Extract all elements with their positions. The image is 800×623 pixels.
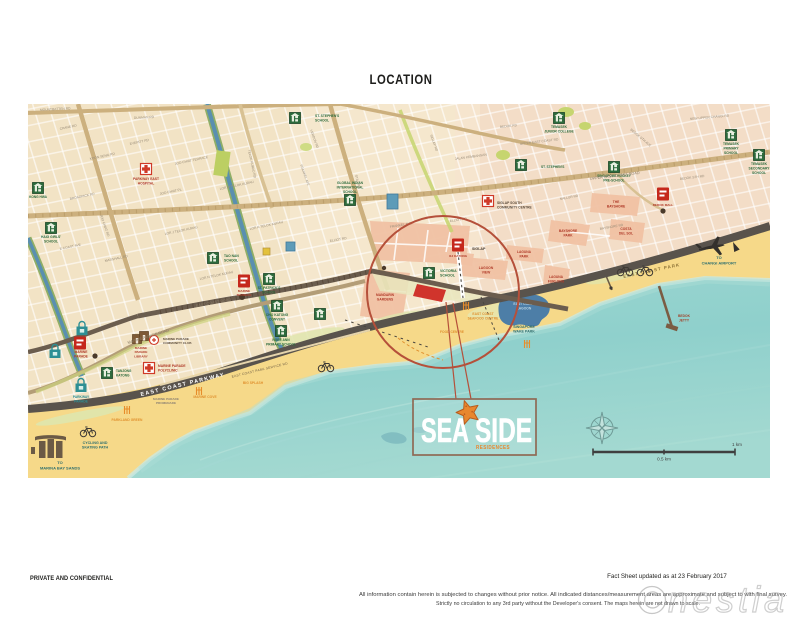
- svg-text:TO: TO: [57, 460, 62, 465]
- svg-text:SCHOOL: SCHOOL: [440, 274, 456, 278]
- svg-text:SIGLAP: SIGLAP: [472, 247, 486, 251]
- svg-text:PARADE: PARADE: [135, 350, 148, 354]
- svg-text:PARKWAY: PARKWAY: [73, 395, 90, 399]
- svg-text:LAGOON: LAGOON: [517, 307, 532, 311]
- svg-text:TANJONG: TANJONG: [116, 369, 132, 373]
- svg-text:JETTY: JETTY: [679, 319, 690, 323]
- svg-text:PRE-SCHOOL: PRE-SCHOOL: [603, 178, 624, 182]
- svg-text:TEMASEK: TEMASEK: [551, 125, 568, 129]
- svg-text:SEAFOOD CENTRE: SEAFOOD CENTRE: [468, 316, 500, 320]
- svg-text:BAYSHORE: BAYSHORE: [607, 204, 626, 208]
- svg-text:MARINE: MARINE: [238, 289, 250, 293]
- svg-text:THE: THE: [613, 200, 620, 204]
- svg-text:BAYSHORE: BAYSHORE: [559, 229, 578, 233]
- svg-text:LIBRARY: LIBRARY: [134, 354, 149, 358]
- svg-text:MARINE PARADE: MARINE PARADE: [158, 364, 186, 368]
- svg-text:PARKLAND GREEN: PARKLAND GREEN: [112, 418, 144, 422]
- svg-text:SCHOOL: SCHOOL: [343, 190, 357, 194]
- svg-text:NGEE ANN: NGEE ANN: [272, 338, 290, 342]
- svg-text:ST. PATRICK'S: ST. PATRICK'S: [258, 286, 282, 290]
- svg-text:TEMASEK: TEMASEK: [751, 162, 768, 166]
- svg-text:CHANGI AIRPORT: CHANGI AIRPORT: [702, 260, 737, 265]
- svg-text:FOOD CENTRE: FOOD CENTRE: [440, 330, 465, 334]
- svg-text:0.5 km: 0.5 km: [657, 457, 671, 462]
- svg-text:MARINE PARADE: MARINE PARADE: [163, 337, 189, 341]
- svg-text:TAO NAN: TAO NAN: [224, 254, 239, 258]
- svg-text:ST. STEPHEN'S: ST. STEPHEN'S: [315, 114, 340, 118]
- svg-text:LAGOON: LAGOON: [479, 266, 494, 270]
- svg-text:KONG HWA: KONG HWA: [29, 195, 48, 199]
- svg-text:SCHOOL: SCHOOL: [315, 118, 329, 122]
- svg-text:FURLONG: FURLONG: [548, 279, 565, 283]
- svg-text:JUNIOR COLLEGE: JUNIOR COLLEGE: [544, 129, 574, 133]
- svg-text:EAST COAST: EAST COAST: [472, 312, 493, 316]
- svg-text:SEA: SEA: [421, 412, 469, 450]
- svg-text:COMMUNITY CLUB: COMMUNITY CLUB: [163, 341, 192, 345]
- svg-text:MARINE COVE: MARINE COVE: [193, 395, 217, 399]
- svg-text:SIGLAP SOUTH: SIGLAP SOUTH: [497, 201, 522, 205]
- svg-text:SECONDARY: SECONDARY: [749, 166, 771, 170]
- svg-text:PARK: PARK: [519, 254, 529, 258]
- svg-text:nestia: nestia: [668, 579, 788, 618]
- svg-text:LAGUNA: LAGUNA: [517, 250, 532, 254]
- svg-text:Strictly no circulation to any: Strictly no circulation to any 3rd party…: [436, 601, 700, 607]
- svg-text:PARKWAY EAST: PARKWAY EAST: [133, 177, 159, 181]
- svg-text:PARK: PARK: [563, 233, 573, 237]
- svg-text:BIG SPLASH: BIG SPLASH: [243, 381, 264, 385]
- svg-text:BEDOK MALL: BEDOK MALL: [653, 203, 674, 207]
- svg-text:COMMUNITY CENTRE: COMMUNITY CENTRE: [497, 205, 533, 209]
- svg-text:SCHOOL: SCHOOL: [262, 290, 276, 294]
- svg-text:TERRACE: TERRACE: [237, 293, 252, 297]
- svg-text:MARINE: MARINE: [74, 350, 88, 354]
- svg-text:VIEW: VIEW: [482, 270, 491, 274]
- svg-text:SINGAPORE: SINGAPORE: [513, 325, 535, 329]
- svg-text:POLYCLINIC: POLYCLINIC: [158, 368, 178, 372]
- svg-text:CYCLING AND: CYCLING AND: [83, 441, 108, 445]
- svg-text:CONVENT: CONVENT: [269, 317, 285, 321]
- svg-text:MARINE PARADE: MARINE PARADE: [153, 397, 179, 401]
- svg-text:BEDOK: BEDOK: [678, 314, 691, 318]
- svg-text:VICTORIA: VICTORIA: [440, 269, 457, 273]
- svg-text:PROMENADE: PROMENADE: [156, 401, 176, 405]
- svg-text:CHIJ KATONG: CHIJ KATONG: [266, 313, 289, 317]
- svg-text:DEL SOL: DEL SOL: [619, 231, 633, 235]
- svg-text:WAKE PARK: WAKE PARK: [513, 330, 535, 334]
- svg-text:GARDENS: GARDENS: [377, 297, 394, 301]
- svg-text:ST. STEPHEN'S: ST. STEPHEN'S: [541, 165, 564, 169]
- svg-text:PRIMARY: PRIMARY: [723, 146, 739, 150]
- svg-text:SKATING PATH: SKATING PATH: [82, 446, 109, 450]
- svg-text:KATONG: KATONG: [116, 373, 130, 377]
- svg-text:HOSPITAL: HOSPITAL: [138, 181, 154, 185]
- svg-text:LAGUNA: LAGUNA: [549, 275, 564, 279]
- svg-text:SCHOOL: SCHOOL: [224, 258, 238, 262]
- svg-text:PRIVATE AND CONFIDENTIAL: PRIVATE AND CONFIDENTIAL: [30, 575, 113, 582]
- svg-text:PARADE: PARADE: [74, 354, 88, 358]
- svg-text:RESIDENCES: RESIDENCES: [476, 445, 510, 451]
- svg-text:MARINE: MARINE: [135, 346, 147, 350]
- svg-text:SIDE: SIDE: [475, 412, 532, 450]
- svg-text:SCHOOL: SCHOOL: [724, 151, 738, 155]
- svg-text:LOCATION: LOCATION: [370, 72, 433, 87]
- svg-text:TO: TO: [716, 255, 721, 260]
- svg-text:TEMASEK: TEMASEK: [723, 142, 740, 146]
- svg-text:PRIMARY SCHOOL: PRIMARY SCHOOL: [266, 342, 296, 346]
- svg-text:MARINA BAY SANDS: MARINA BAY SANDS: [40, 465, 80, 470]
- svg-text:1 km: 1 km: [732, 442, 742, 447]
- svg-text:COSTA: COSTA: [620, 227, 632, 231]
- svg-text:SCHOOL: SCHOOL: [44, 239, 58, 243]
- svg-text:I12 KATONG: I12 KATONG: [449, 254, 468, 258]
- svg-text:MANDARIN: MANDARIN: [376, 293, 395, 297]
- svg-text:SCHOOL: SCHOOL: [752, 171, 766, 175]
- svg-text:PARADE: PARADE: [74, 399, 88, 403]
- svg-text:HAIG GIRLS': HAIG GIRLS': [41, 235, 61, 239]
